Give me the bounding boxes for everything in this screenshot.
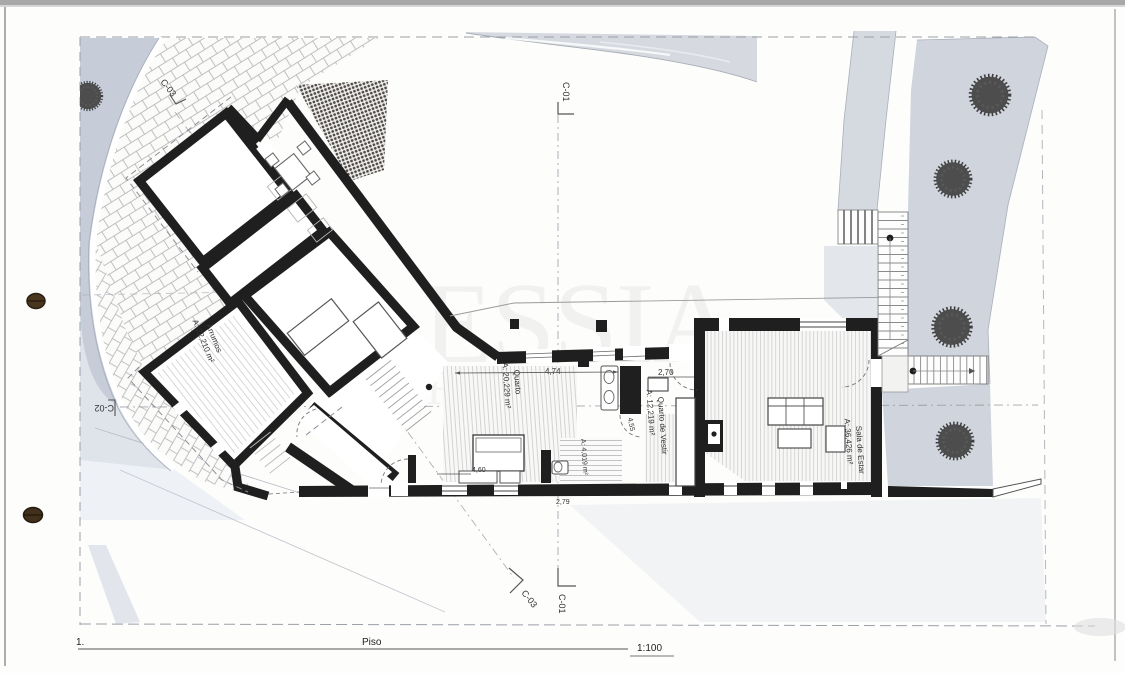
svg-text:1.: 1. <box>76 637 84 648</box>
svg-text:4,60: 4,60 <box>472 467 486 474</box>
svg-text:Piso: Piso <box>362 637 382 648</box>
svg-text:2,70: 2,70 <box>658 368 674 377</box>
svg-text:Quarto: Quarto <box>512 370 523 396</box>
svg-text:4,74: 4,74 <box>545 367 561 376</box>
svg-text:2,79: 2,79 <box>556 499 570 506</box>
svg-text:C-02: C-02 <box>94 403 114 413</box>
svg-text:C-01: C-01 <box>557 594 567 614</box>
svg-text:C-01: C-01 <box>561 82 571 102</box>
svg-text:1:100: 1:100 <box>637 643 662 654</box>
